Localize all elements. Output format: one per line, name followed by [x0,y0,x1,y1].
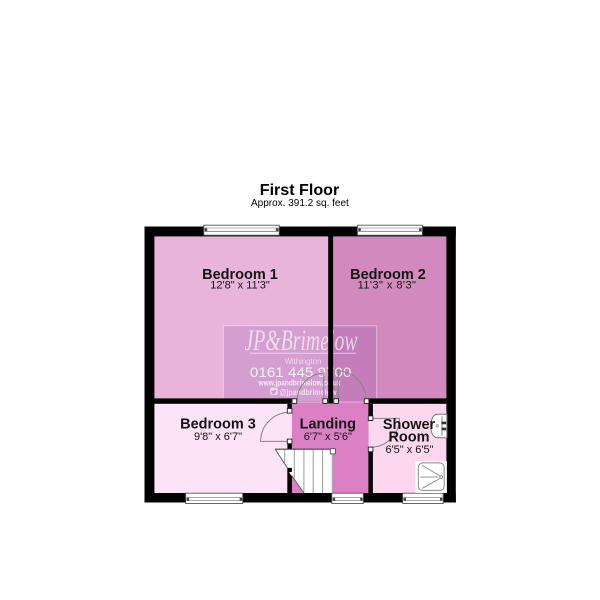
svg-text:11'3" x 8'3": 11'3" x 8'3" [358,280,417,292]
svg-text:6'5" x 6'5": 6'5" x 6'5" [385,444,433,456]
svg-text:JP&Brimelow: JP&Brimelow [245,324,358,357]
svg-text:Bedroom 3: Bedroom 3 [180,417,256,433]
svg-text:Landing: Landing [300,417,356,433]
svg-text:12'8" x 11'3": 12'8" x 11'3" [210,280,270,292]
svg-text:Approx. 391.2 sq. feet: Approx. 391.2 sq. feet [251,198,349,209]
svg-text:6'7" x 5'6": 6'7" x 5'6" [304,431,352,443]
svg-text:First Floor: First Floor [260,182,340,199]
svg-text:9'8" x 6'7": 9'8" x 6'7" [194,431,242,443]
